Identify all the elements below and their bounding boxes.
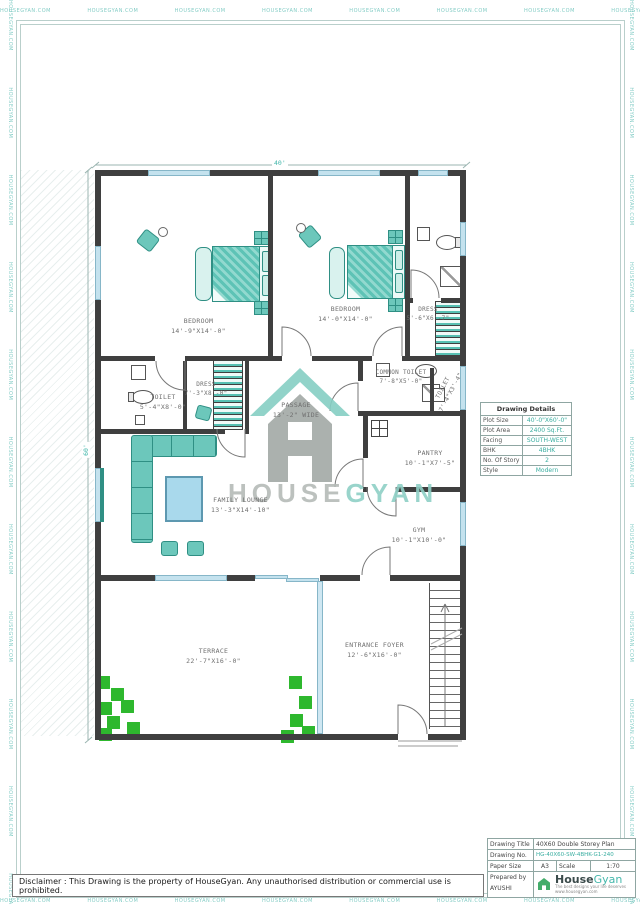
dimension-width: 40'	[272, 159, 288, 167]
table-row: Facing SOUTH-WEST	[481, 436, 571, 446]
title-block-row: Paper Size A3 Scale 1:70	[488, 861, 635, 872]
room-label-gym: GYM10'-1"X10'-0"	[379, 526, 459, 546]
border-watermark-bottom: HOUSEGYAN.COM HOUSEGYAN.COM HOUSEGYAN.CO…	[0, 897, 640, 905]
wall-segment	[320, 575, 360, 581]
logo-site: www.housegyan.com	[555, 890, 626, 895]
title-block-row: Drawing No. HG-40X60-SW-4BHK-G1-240	[488, 850, 635, 861]
side-table-icon	[158, 227, 168, 237]
housegyan-logo-icon	[536, 876, 552, 892]
window	[460, 222, 466, 256]
room-label-bedroom-1: BEDROOM14'-9"X14'-0"	[146, 317, 251, 337]
bed-icon	[212, 246, 272, 302]
room-label-common-toilet: COMMON TOILET7'-8"X5'-0"	[358, 368, 444, 386]
table-row: Style Modern	[481, 466, 571, 475]
window	[460, 502, 466, 546]
wall-segment	[405, 176, 410, 356]
shower-icon	[440, 266, 462, 287]
wall-segment	[95, 734, 398, 740]
wall-segment	[95, 429, 225, 434]
dimension-height: 60'	[82, 442, 90, 458]
wall-segment	[402, 356, 466, 361]
room-label-pantry: PANTRY10'-1"X7'-5"	[390, 449, 470, 469]
stove-icon	[371, 420, 388, 437]
housegyan-logo: HouseGyan The best designs your life des…	[534, 872, 635, 897]
floor-drain-icon	[135, 415, 145, 425]
bench-icon	[195, 247, 212, 301]
title-block-row: Drawing Title 40X60 Double Storey Plan	[488, 839, 635, 850]
table-row: Plot Size 40'-0"X60'-0"	[481, 416, 571, 426]
sofa-icon	[131, 435, 153, 543]
sliding-door	[286, 578, 319, 582]
room-label-entrance-foyer: ENTRANCE FOYER12'-6"X16'-0"	[322, 641, 427, 661]
window	[418, 170, 448, 176]
drawing-sheet: HOUSEGYAN.COM HOUSEGYAN.COM HOUSEGYAN.CO…	[0, 0, 640, 905]
window	[318, 170, 380, 176]
bed-headboard	[392, 246, 404, 298]
disclaimer-text: Disclaimer : This Drawing is the propert…	[19, 877, 483, 895]
bed-icon	[347, 245, 405, 299]
wall-segment	[363, 416, 368, 458]
sliding-door	[255, 575, 288, 579]
table-row: Plot Area 2400 Sq.Ft.	[481, 426, 571, 436]
room-label-passage: PASSAGE13'-2" WIDE	[256, 401, 336, 421]
wall-segment	[268, 176, 273, 356]
wall-segment	[441, 298, 466, 303]
tv-unit-icon	[100, 468, 104, 522]
wall-segment	[95, 356, 155, 361]
room-label-dress-left: DRESS7'-3"X8'-0"	[170, 380, 242, 398]
drawing-details-title: Drawing Details	[481, 403, 571, 416]
wall-segment	[405, 298, 413, 303]
disclaimer-bar: Disclaimer : This Drawing is the propert…	[12, 874, 484, 897]
title-block: Drawing Title 40X60 Double Storey Plan D…	[487, 838, 636, 898]
nightstand-icon	[388, 230, 403, 244]
room-label-terrace: TERRACE22'-7"X16'-0"	[161, 647, 266, 667]
room-label-bedroom-2: BEDROOM14'-0"X14'-0"	[293, 305, 398, 325]
border-watermark-right: HOUSEGYAN.COM HOUSEGYAN.COM HOUSEGYAN.CO…	[627, 0, 635, 905]
stool-icon	[187, 541, 204, 556]
prepared-by-value: AYUSHI	[490, 885, 531, 892]
plant-icon	[121, 700, 134, 713]
wall-segment	[390, 575, 466, 581]
wall-segment	[227, 575, 255, 581]
room-label-dress-right: DRESS5'-6"X6'-7"	[399, 305, 457, 323]
title-block-row: Prepared by AYUSHI HouseGyan The best de…	[488, 872, 635, 897]
bench-icon	[329, 247, 345, 299]
window	[148, 170, 210, 176]
nightstand-icon	[254, 231, 269, 245]
washbasin-icon	[417, 227, 430, 241]
washbasin-icon	[131, 365, 146, 380]
room-label-family-lounge: FAMILY LOUNGE13'-3"X14'-10"	[188, 496, 293, 516]
border-watermark-top: HOUSEGYAN.COM HOUSEGYAN.COM HOUSEGYAN.CO…	[0, 7, 640, 15]
stool-icon	[161, 541, 178, 556]
window	[155, 575, 227, 581]
nightstand-icon	[254, 301, 269, 315]
prepared-by-label: Prepared by	[490, 874, 531, 881]
wall-segment	[428, 734, 466, 740]
wall-segment	[358, 411, 466, 416]
border-watermark-left: HOUSEGYAN.COM HOUSEGYAN.COM HOUSEGYAN.CO…	[6, 0, 14, 905]
pillow-icon	[395, 273, 403, 293]
plant-icon	[289, 676, 302, 689]
pillow-icon	[395, 250, 403, 270]
drawing-details-table: Drawing Details Plot Size 40'-0"X60'-0" …	[480, 402, 572, 476]
table-row: BHK 4BHK	[481, 446, 571, 456]
plant-icon	[299, 696, 312, 709]
wall-segment	[95, 575, 155, 581]
side-table-icon	[296, 223, 306, 233]
table-row: No. Of Story 2	[481, 456, 571, 466]
housegyan-watermark-icon	[248, 360, 352, 484]
sofa-icon	[149, 435, 217, 457]
staircase	[429, 583, 462, 729]
window	[95, 246, 101, 300]
